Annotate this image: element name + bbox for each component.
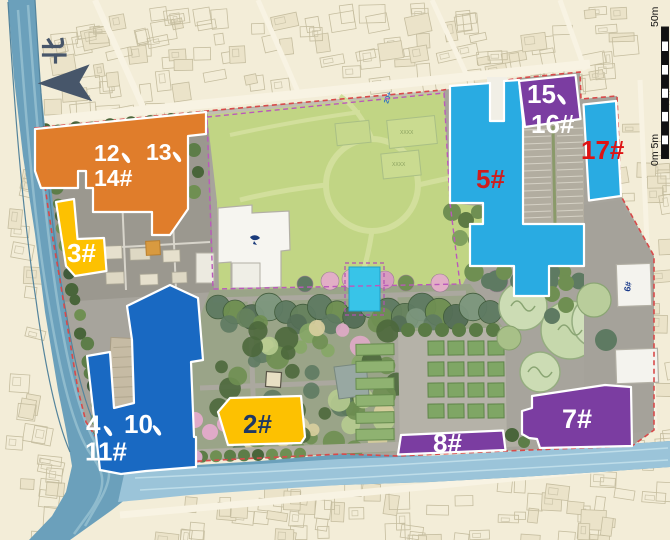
svg-text:4: 4: [86, 410, 101, 440]
svg-text:14#: 14#: [94, 165, 133, 191]
svg-text:50m: 50m: [649, 6, 661, 27]
svg-text:17#: 17#: [581, 135, 625, 165]
svg-text:15: 15: [527, 79, 556, 109]
svg-text:13: 13: [146, 139, 172, 165]
svg-text:XXXX: XXXX: [400, 130, 414, 136]
svg-text:10: 10: [124, 409, 153, 439]
svg-text:6#: 6#: [622, 281, 634, 293]
svg-text:0m 5m: 0m 5m: [649, 134, 661, 166]
svg-text:7#: 7#: [562, 404, 592, 434]
svg-text:2#: 2#: [243, 409, 272, 439]
svg-text:11#: 11#: [85, 437, 127, 467]
svg-text:16#: 16#: [531, 109, 575, 139]
svg-text:5#: 5#: [476, 164, 505, 194]
svg-text:XXXX: XXXX: [392, 162, 406, 168]
svg-text:3#: 3#: [67, 238, 96, 268]
svg-text:8#: 8#: [433, 428, 462, 458]
svg-text:12: 12: [94, 140, 120, 166]
